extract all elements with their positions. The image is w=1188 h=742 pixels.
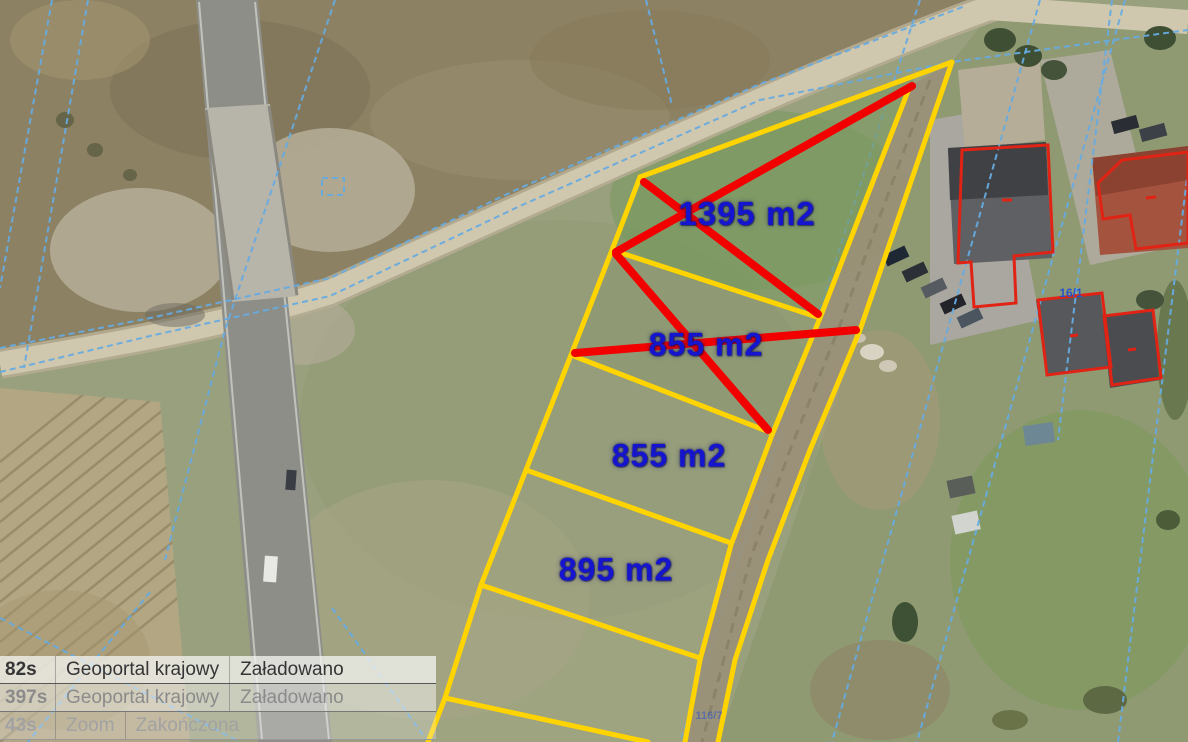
log-time: 397s bbox=[0, 684, 56, 711]
log-source: Zoom bbox=[56, 712, 126, 739]
log-time: 43s bbox=[0, 712, 56, 739]
parcel-area-label: 855 m2 bbox=[649, 327, 764, 364]
layer-status-log: 82s Geoportal krajowy Załadowano 397s Ge… bbox=[0, 656, 436, 742]
log-row: 82s Geoportal krajowy Załadowano bbox=[0, 656, 436, 684]
log-status: Załadowano bbox=[230, 684, 436, 711]
log-source: Geoportal krajowy bbox=[56, 684, 230, 711]
log-row: 397s Geoportal krajowy Załadowano bbox=[0, 684, 436, 712]
truck bbox=[263, 556, 278, 583]
aerial-map bbox=[0, 0, 1188, 742]
parcel-area-label: 895 m2 bbox=[559, 552, 674, 589]
parcel-area-label: 1395 m2 bbox=[678, 195, 815, 233]
log-source: Geoportal krajowy bbox=[56, 656, 230, 683]
parcel-number-label: 116/7 bbox=[696, 710, 723, 722]
parcel-number-label: 16/1 bbox=[1059, 286, 1082, 300]
log-row: 43s Zoom Zakończona bbox=[0, 712, 436, 740]
parcel-area-label: 855 m2 bbox=[612, 438, 727, 475]
shed bbox=[1023, 422, 1055, 446]
log-status: Załadowano bbox=[230, 656, 436, 683]
car bbox=[285, 470, 296, 491]
map-viewport[interactable]: 1395 m2 855 m2 855 m2 895 m2 16/1 116/7 … bbox=[0, 0, 1188, 742]
log-status: Zakończona bbox=[126, 712, 436, 739]
log-time: 82s bbox=[0, 656, 56, 683]
